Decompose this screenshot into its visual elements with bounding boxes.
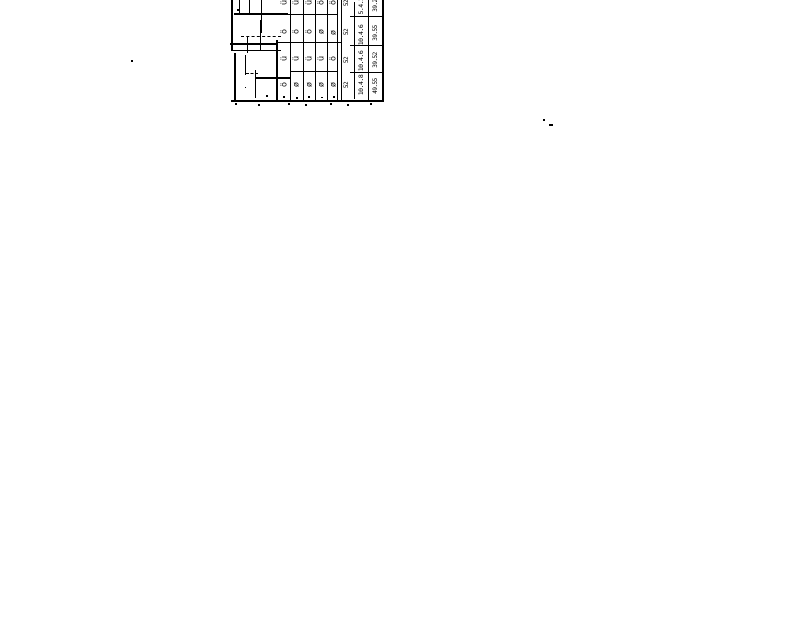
grid-line: [246, 73, 258, 74]
table-value: 39.55: [373, 25, 379, 41]
table-cell-glyph: ö: [279, 80, 288, 90]
table-cell-glyph: ü: [292, 0, 301, 8]
table-cell-glyph: ø: [292, 80, 301, 90]
table-cell-glyph: ö: [279, 27, 288, 37]
table-cell-glyph: ü: [317, 53, 326, 63]
grid-line: [260, 20, 261, 50]
table-value: 39.52: [373, 52, 379, 68]
table-value: 52: [344, 28, 350, 34]
noise-speck: [235, 103, 237, 105]
noise-speck: [308, 96, 310, 98]
table-cell-glyph: ö: [329, 0, 338, 8]
noise-speck: [330, 103, 332, 105]
table-value: 52: [344, 56, 350, 62]
noise-speck: [543, 119, 545, 121]
noise-speck: [258, 104, 260, 106]
grid-line: [255, 77, 290, 79]
grid-line: [350, 45, 382, 46]
grid-line: [255, 70, 256, 98]
grid-line: [249, 0, 250, 14]
table-cell-glyph: ü: [304, 0, 313, 8]
noise-speck: [305, 104, 307, 106]
table-cell-glyph: ö: [304, 27, 313, 37]
noise-speck: [283, 96, 285, 98]
noise-speck: [347, 104, 349, 106]
grid-line: [382, 0, 384, 102]
grid-line: [288, 14, 338, 15]
table-value: 5.4.2: [357, 0, 364, 14]
noise-speck: [266, 95, 268, 97]
grid-line: [234, 13, 288, 15]
grid-line: [231, 50, 281, 52]
noise-speck: [245, 87, 247, 89]
grid-line: [350, 72, 382, 73]
table-cell-glyph: ö: [292, 27, 301, 37]
table-value: 10.4.6: [357, 51, 364, 71]
noise-speck: [333, 96, 335, 98]
table-cell-glyph: ö: [329, 54, 338, 64]
scanned-page: ü ü ü ö ö ö ö ö ø ø ü ü ü ü ö ö ø ø ø ø …: [0, 0, 800, 618]
table-bottom-border: [231, 100, 382, 102]
table-value: 39.25: [373, 0, 379, 12]
table-value: 49.55: [373, 78, 379, 94]
noise-speck: [288, 103, 290, 105]
table-value: 10.4.8: [357, 75, 364, 95]
noise-speck: [237, 9, 239, 11]
table-cell-glyph: ü: [279, 0, 288, 8]
grid-line: [230, 43, 277, 45]
noise-speck: [549, 124, 553, 126]
grid-line: [341, 0, 343, 102]
table-cell-glyph: ü: [292, 53, 301, 63]
table-cell-glyph: ü: [279, 53, 288, 63]
table-cell-glyph: ü: [304, 53, 313, 63]
table-cell-glyph: ö: [317, 0, 326, 8]
table-value: 52: [344, 0, 350, 6]
grid-line: [354, 2, 355, 99]
grid-line: [276, 40, 279, 101]
grid-line: [350, 16, 382, 17]
table-cell-glyph: ø: [329, 28, 338, 38]
noise-speck: [321, 97, 323, 99]
noise-speck: [296, 97, 298, 99]
table-cell-glyph: ø: [329, 80, 338, 90]
grid-line: [277, 42, 342, 44]
grid-line: [239, 0, 240, 14]
table-value: 52: [344, 82, 350, 88]
noise-speck: [370, 103, 372, 105]
grid-line: [234, 53, 236, 101]
grid-line: [261, 0, 262, 33]
table-cell-glyph: ø: [317, 80, 326, 90]
noise-speck: [131, 60, 133, 62]
table-cell-glyph: ø: [304, 80, 313, 90]
table-value: 10.4.6: [357, 25, 364, 45]
table-cell-glyph: ø: [317, 27, 326, 37]
grid-line: [290, 71, 338, 72]
